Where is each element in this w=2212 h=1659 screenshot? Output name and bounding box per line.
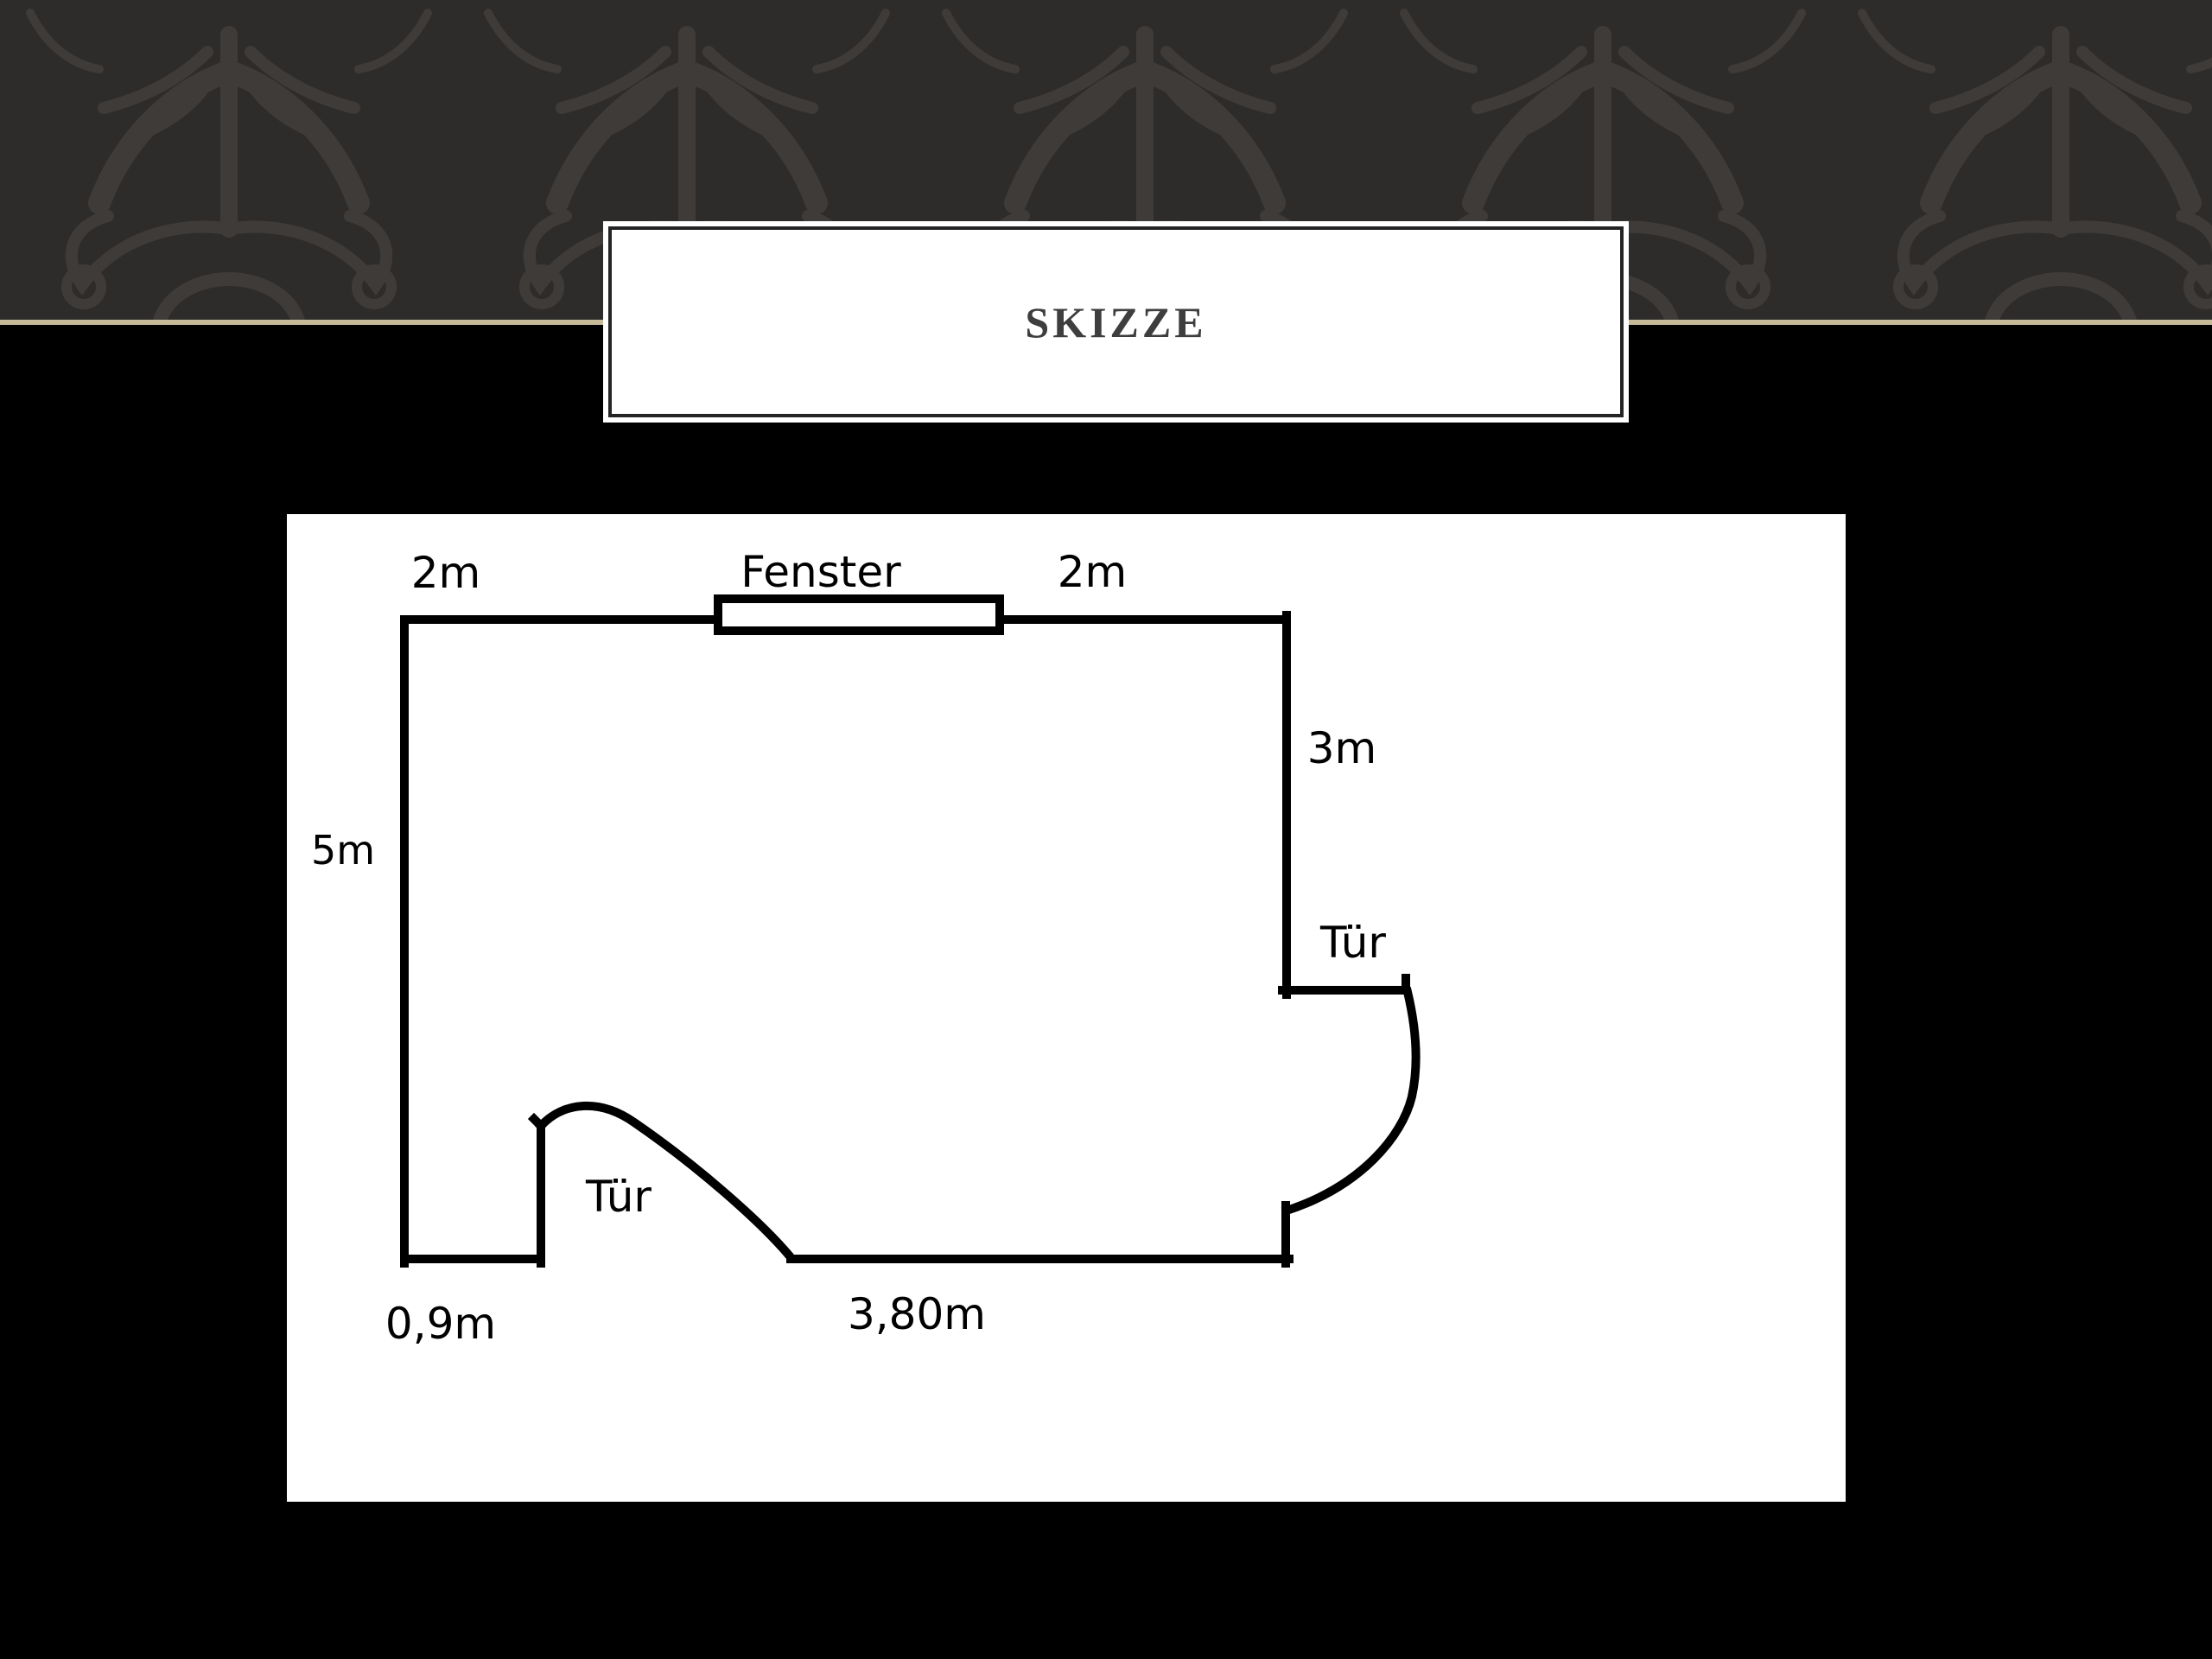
- title-box: SKIZZE: [608, 226, 1624, 417]
- page-title: SKIZZE: [1025, 297, 1206, 347]
- floor-plan-sheet: 2m Fenster 2m 3m 5m Tür Tür 0,9m 3,80m: [287, 514, 1846, 1502]
- door-left-leaf: [534, 1119, 541, 1263]
- door-label-right: Tür: [1320, 918, 1386, 968]
- dimension-label-bottom-left: 0,9m: [385, 1299, 496, 1349]
- window-label: Fenster: [741, 547, 900, 597]
- dimension-label-left: 5m: [311, 827, 375, 874]
- window-symbol: [718, 599, 1000, 631]
- door-right-swing-arc: [1287, 992, 1416, 1211]
- door-label-left: Tür: [586, 1172, 652, 1222]
- dimension-label-top-left: 2m: [411, 548, 481, 598]
- dimension-label-right: 3m: [1307, 723, 1377, 773]
- presentation-slide: SKIZZE 2m Fenster 2m 3m 5m Tür Tür 0,9m …: [0, 0, 2212, 1659]
- dimension-label-top-right: 2m: [1058, 547, 1128, 597]
- door-right-leaf: [1282, 978, 1406, 990]
- floor-plan-drawing: [287, 514, 1846, 1502]
- door-left-swing-arc: [541, 1106, 791, 1257]
- dimension-label-bottom: 3,80m: [848, 1289, 986, 1339]
